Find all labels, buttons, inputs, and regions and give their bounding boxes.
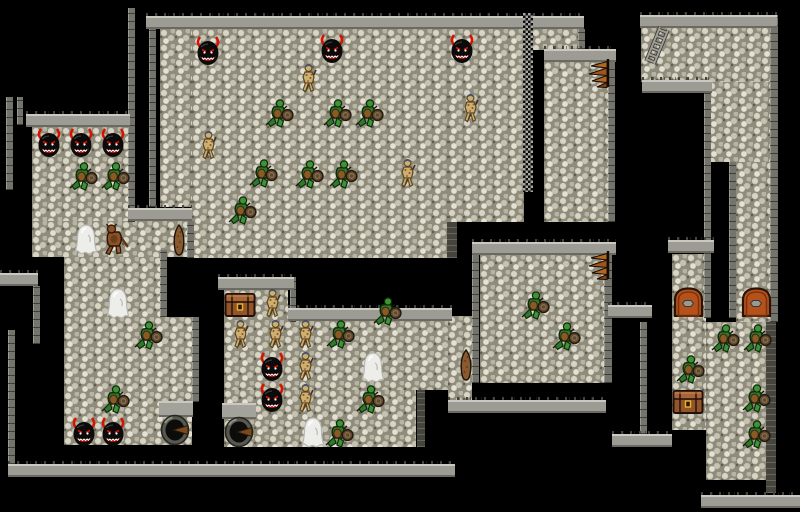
floor-region[interactable] xyxy=(708,82,770,162)
wall-side xyxy=(417,390,425,447)
wall-top xyxy=(128,205,192,221)
orc-warrior[interactable] xyxy=(98,383,130,416)
gnoll[interactable] xyxy=(293,351,319,383)
door[interactable] xyxy=(673,287,704,317)
demon-head[interactable] xyxy=(99,128,127,158)
orc-warrior[interactable] xyxy=(708,322,740,355)
treasure-chest[interactable] xyxy=(224,290,256,318)
wall-top xyxy=(668,237,714,253)
orc-warrior[interactable] xyxy=(225,194,257,227)
wall-side xyxy=(6,97,13,190)
orc-warrior[interactable] xyxy=(353,383,385,416)
demon-head[interactable] xyxy=(448,34,476,64)
orc-warrior[interactable] xyxy=(262,97,294,130)
orc-warrior[interactable] xyxy=(352,97,384,130)
gnoll[interactable] xyxy=(196,130,222,162)
demon-head[interactable] xyxy=(67,128,95,158)
wall-side xyxy=(187,221,194,258)
demon-head[interactable] xyxy=(258,383,286,413)
gnoll[interactable] xyxy=(395,158,421,190)
orc-warrior[interactable] xyxy=(323,318,355,351)
ghost[interactable] xyxy=(73,223,99,255)
wall-top xyxy=(612,431,672,447)
orc-warrior[interactable] xyxy=(66,160,98,193)
ghost[interactable] xyxy=(105,287,131,319)
floor-region[interactable] xyxy=(160,29,192,207)
gnoll[interactable] xyxy=(263,319,289,351)
orc-warrior[interactable] xyxy=(246,157,278,190)
orc-warrior[interactable] xyxy=(370,295,402,328)
demon-head[interactable] xyxy=(70,417,98,447)
orc-warrior[interactable] xyxy=(320,97,352,130)
wooden-club[interactable] xyxy=(171,224,187,256)
demon-head[interactable] xyxy=(99,417,127,447)
orc-warrior[interactable] xyxy=(518,289,550,322)
portcullis-fence xyxy=(523,13,533,192)
orc-warrior[interactable] xyxy=(673,353,705,386)
wall-top xyxy=(608,302,652,318)
orc-warrior[interactable] xyxy=(739,382,771,415)
orc-warrior[interactable] xyxy=(739,418,771,451)
demon-head[interactable] xyxy=(35,128,63,158)
wall-side xyxy=(640,322,647,434)
wall-side xyxy=(17,97,23,125)
gnoll[interactable] xyxy=(293,383,319,415)
spiral-staircase[interactable] xyxy=(585,250,611,280)
wall-top xyxy=(0,270,38,286)
demon-head[interactable] xyxy=(258,352,286,382)
wall-top xyxy=(701,492,800,508)
wall-side xyxy=(704,82,711,318)
demon-head[interactable] xyxy=(318,34,346,64)
orc-warrior[interactable] xyxy=(292,158,324,191)
wall-top xyxy=(642,77,712,93)
well[interactable] xyxy=(224,416,254,448)
wall-top xyxy=(448,397,606,413)
wall-side xyxy=(33,286,40,344)
gnoll[interactable] xyxy=(458,93,484,125)
wall-side xyxy=(8,330,15,464)
gnoll[interactable] xyxy=(260,288,286,320)
wall-side xyxy=(192,317,199,402)
wall-side xyxy=(729,162,736,318)
wooden-club[interactable] xyxy=(458,349,474,381)
beast[interactable] xyxy=(100,222,130,256)
door[interactable] xyxy=(741,287,772,317)
demon-head[interactable] xyxy=(194,36,222,66)
wall-side xyxy=(447,222,457,258)
gnoll[interactable] xyxy=(228,319,254,351)
orc-warrior[interactable] xyxy=(326,158,358,191)
ladder[interactable] xyxy=(643,26,670,66)
treasure-chest[interactable] xyxy=(672,387,704,415)
wall-side xyxy=(770,15,778,322)
wall-side xyxy=(160,250,167,317)
wall-side xyxy=(149,29,156,207)
wall-top xyxy=(26,111,130,127)
wall-top xyxy=(8,461,455,477)
orc-warrior[interactable] xyxy=(549,320,581,353)
orc-warrior[interactable] xyxy=(740,322,772,355)
orc-warrior[interactable] xyxy=(131,319,163,352)
ghost[interactable] xyxy=(360,351,386,383)
spiral-staircase[interactable] xyxy=(585,58,611,88)
wall-top xyxy=(146,13,584,29)
gnoll[interactable] xyxy=(293,319,319,351)
orc-warrior[interactable] xyxy=(98,160,130,193)
orc-warrior[interactable] xyxy=(322,417,354,450)
dungeon-map xyxy=(0,0,800,512)
gnoll[interactable] xyxy=(296,63,322,95)
well[interactable] xyxy=(160,414,190,446)
